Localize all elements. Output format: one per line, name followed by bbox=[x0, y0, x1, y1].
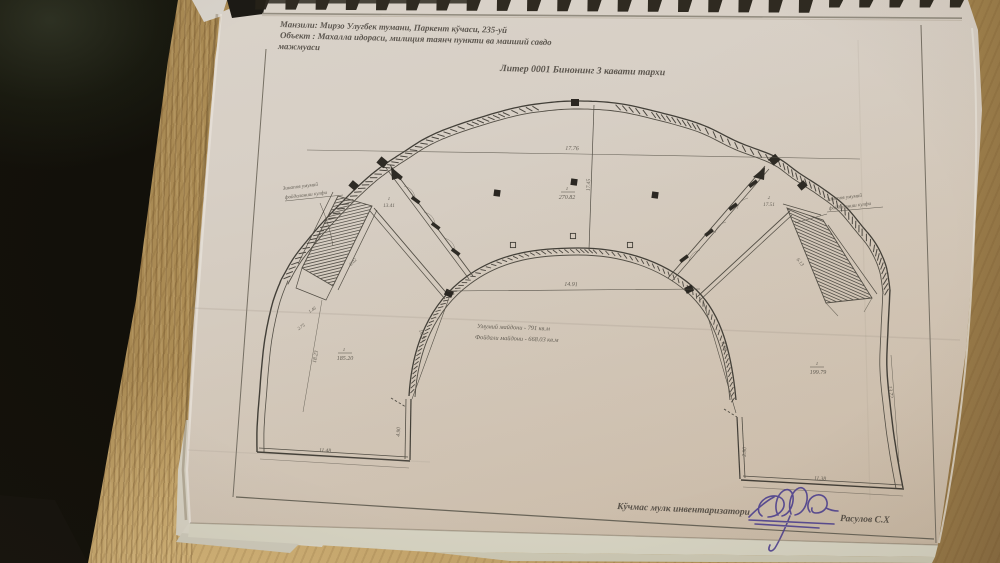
svg-text:13.41: 13.41 bbox=[383, 202, 395, 209]
svg-text:11.38: 11.38 bbox=[814, 476, 827, 483]
svg-text:13.72: 13.72 bbox=[886, 385, 893, 398]
svg-text:2.75: 2.75 bbox=[296, 322, 306, 331]
svg-text:17.45: 17.45 bbox=[585, 178, 592, 191]
svg-text:17.76: 17.76 bbox=[565, 146, 579, 152]
svg-text:2: 2 bbox=[768, 196, 771, 201]
svg-text:185.20: 185.20 bbox=[337, 356, 354, 362]
svg-text:17.51: 17.51 bbox=[763, 202, 775, 208]
svg-text:Зинапоя умумий: Зинапоя умумий bbox=[282, 181, 318, 192]
svg-text:Умумий майдони - 791 кв.м: Умумий майдони - 791 кв.м bbox=[477, 323, 550, 333]
svg-text:Расулов С.Х: Расулов С.Х bbox=[840, 514, 891, 526]
svg-text:18.23: 18.23 bbox=[312, 350, 320, 363]
svg-text:11.48: 11.48 bbox=[319, 447, 332, 455]
svg-text:1: 1 bbox=[816, 362, 819, 367]
svg-text:Фойдали майдони - 668.03 кв.м: Фойдали майдони - 668.03 кв.м bbox=[475, 334, 559, 344]
svg-text:1: 1 bbox=[388, 197, 390, 202]
svg-text:2.90: 2.90 bbox=[742, 447, 749, 457]
svg-text:Кўчмас мулк инвентаризатори: Кўчмас мулк инвентаризатори bbox=[616, 501, 750, 518]
svg-text:6.02: 6.02 bbox=[349, 257, 359, 267]
svg-text:Литер 0001 Бинонинг 3 кавати т: Литер 0001 Бинонинг 3 кавати тархи bbox=[499, 63, 666, 78]
svg-text:199.79: 199.79 bbox=[810, 370, 827, 376]
svg-text:4.90: 4.90 bbox=[395, 427, 403, 437]
svg-text:1: 1 bbox=[566, 187, 569, 192]
svg-text:мажмуаси: мажмуаси bbox=[277, 41, 320, 52]
svg-text:Объект : Махалла идораси, мили: Объект : Махалла идораси, милиция таянч … bbox=[280, 30, 552, 47]
svg-text:1: 1 bbox=[343, 348, 346, 353]
svg-text:6.13: 6.13 bbox=[795, 258, 805, 268]
svg-text:14.91: 14.91 bbox=[564, 281, 578, 288]
svg-text:270.82: 270.82 bbox=[559, 195, 576, 201]
svg-text:Зинапоя умумий: Зинапоя умумий bbox=[826, 192, 862, 203]
